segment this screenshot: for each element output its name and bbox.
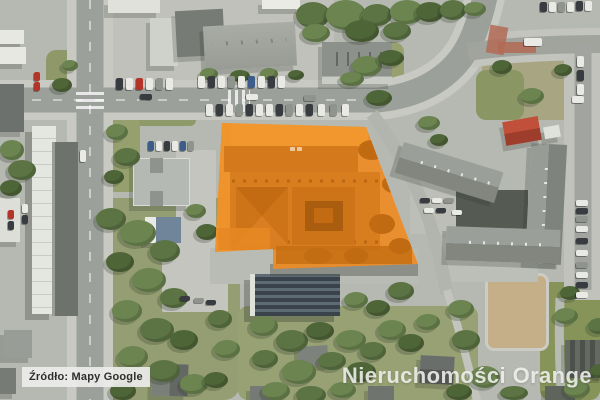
satellite-map: Źródło: Mapy Google Nieruchomości Orange (0, 0, 600, 400)
property-highlight-overlay (0, 0, 600, 400)
ellipse-shape (304, 248, 332, 264)
map-source-label: Źródło: Mapy Google (22, 367, 150, 387)
ellipse-shape (344, 248, 368, 264)
rect-shape (314, 208, 333, 223)
rect-shape (218, 228, 270, 250)
ellipse-shape (382, 175, 406, 193)
map-source-text: Źródło: Mapy Google (29, 371, 143, 383)
agency-watermark: Nieruchomości Orange (342, 363, 592, 389)
ellipse-shape (389, 238, 411, 254)
rect-shape (215, 123, 368, 147)
rect-shape (297, 147, 302, 151)
ellipse-shape (369, 214, 395, 234)
rect-shape (290, 147, 295, 151)
ellipse-shape (358, 140, 386, 160)
